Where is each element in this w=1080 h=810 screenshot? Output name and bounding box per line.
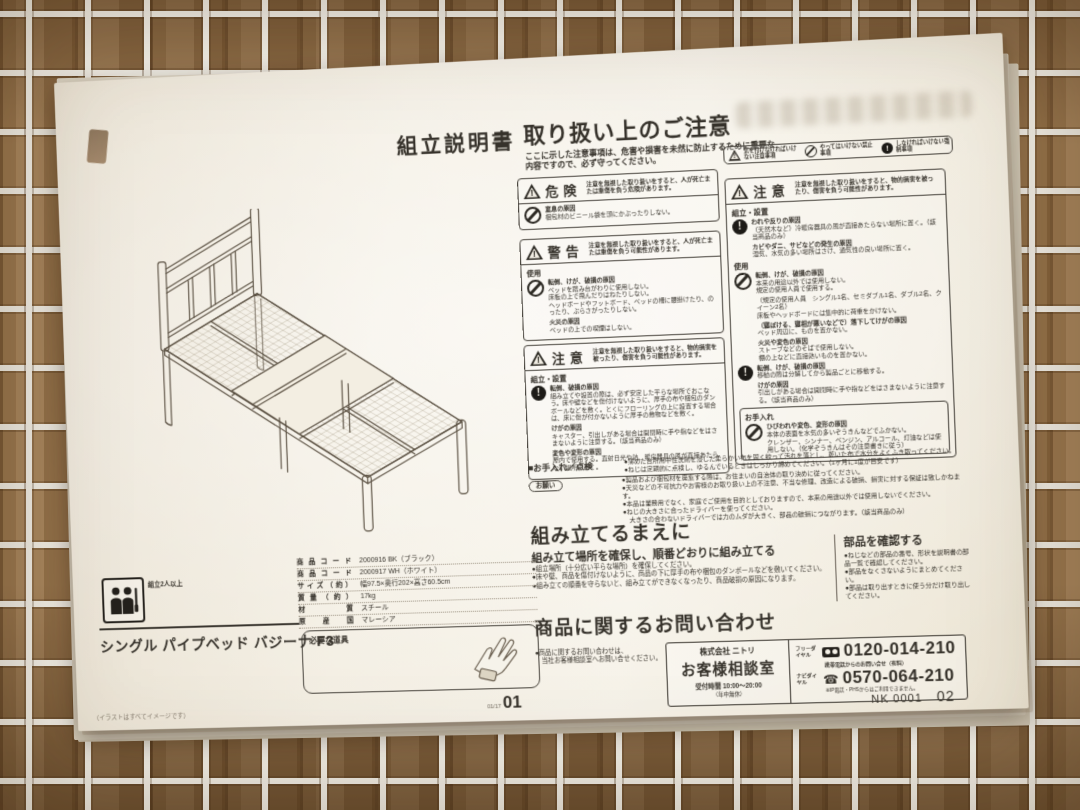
prohibition-icon — [524, 206, 542, 224]
page-big: 01 — [503, 692, 523, 711]
warning-triangle-icon: ! — [525, 244, 543, 260]
maintenance-section: ■お手入れ／点検 ●薄めた台所用中性洗剤を浸した柔らかい布を固く絞って汚れを落と… — [528, 447, 962, 528]
paper-edge-smudge — [87, 129, 109, 164]
freedial-number: 0120-014-210 — [843, 639, 956, 661]
inquiry-note: ●商品に関するお問い合わせは、 当社お客様相談室へお問い合せください。 — [535, 647, 662, 666]
ink-bleed-through — [736, 91, 973, 129]
office-name: お客様相談室 — [671, 656, 785, 680]
two-person-assembly-icon — [101, 577, 145, 623]
mandatory-icon — [531, 385, 547, 401]
check-parts-heading: 部品を確認する — [843, 530, 969, 550]
legend-mandatory-label: しなければいけない強制事項 — [896, 138, 954, 153]
doc-code: NK 0001 — [871, 693, 923, 706]
instruction-manual-page: 組立説明書 取り扱い上のご注意 ここに示した注意事項は、危害や損害を未然に防止す… — [54, 33, 1029, 731]
spec-value: 17kg — [360, 593, 375, 600]
warning-triangle-icon: ! — [530, 350, 548, 366]
document-code: NK 000102 — [871, 688, 956, 708]
freedial-logo-icon — [822, 646, 840, 657]
prohibition-icon — [805, 145, 818, 158]
check-parts-section: 部品を確認する ●ねじなどの部品の番号、形状を説明書の部品一覧で確認してください… — [834, 530, 971, 601]
page-number: 01/1701 — [487, 692, 522, 713]
navidial-number: 0570-064-210 — [842, 666, 955, 688]
spec-label: 原産国 — [299, 615, 354, 627]
freedial-label: フリーダイヤル — [795, 646, 818, 658]
illustration-note: （イラストはすべてイメージです） — [93, 711, 189, 722]
danger-label: 危険 — [545, 179, 582, 200]
caution2-item: 転倒、けが、破損の原因 移動の際は分解してから製品ごとに移動する。 けがの原因 … — [738, 357, 949, 405]
caution-desc: 注意を無視した取り扱いをすると、物的損害を被ったり、傷害を負う可能性があります。 — [593, 344, 719, 363]
spec-label: 商品コード — [297, 568, 352, 581]
legend-prohibited-label: やってはいけない禁止事項 — [820, 142, 878, 157]
spec-label: 材質 — [298, 603, 353, 615]
warning-box: ! 警告 注意を無視した取り扱いをすると、人が死亡または重傷を負う可能性がありま… — [519, 230, 724, 341]
doc-code-num: 02 — [936, 688, 955, 705]
warning-triangle-icon: ! — [728, 149, 741, 161]
prohibition-icon — [734, 272, 752, 290]
maintenance-label: ■お手入れ／点検 — [528, 459, 617, 478]
page-fraction: 01/17 — [487, 704, 501, 710]
caution2-label: 注意 — [753, 180, 790, 201]
contact-company-cell: 株式会社 ニトリ お客様相談室 受付時間 10:00～20:00 （年中無休） — [666, 640, 791, 706]
photo-of-manual: { "title": "組立説明書", "legend": { "items":… — [0, 0, 1080, 810]
product-spec-table: 商品コード2000916 BK（ブラック） 商品コード2000917 WH（ホワ… — [296, 550, 538, 629]
legend-prohibited: やってはいけない禁止事項 — [805, 142, 878, 158]
warning-item: 転倒、けが、破損の原因 ベッドを踏み台がわりに使用しない。 床板の上で飛んだりは… — [527, 272, 718, 335]
spec-label: 商品コード — [296, 556, 351, 569]
navidial-label: ナビダイヤル — [796, 674, 819, 686]
warning-label: 警告 — [547, 241, 584, 262]
prohibition-icon — [745, 424, 763, 442]
office-hours-note: （年中無休） — [672, 689, 786, 700]
mandatory-icon — [732, 219, 748, 235]
caution-box-right: ! 注意 注意を無視した取り扱いをすると、物的損害を被ったり、傷害を負う可能性が… — [724, 168, 956, 465]
spec-value: スチール — [361, 604, 389, 612]
divider-rule — [99, 623, 299, 631]
bed-line-illustration — [86, 197, 513, 546]
legend-caution-label: 気を付けなければいけない注意事項 — [743, 146, 800, 161]
warning-triangle-icon: ! — [523, 183, 541, 199]
mandatory-icon — [881, 142, 893, 154]
inquiry-heading: 商品に関するお問い合わせ — [534, 607, 777, 641]
mandatory-icon — [738, 365, 754, 381]
prohibition-icon — [527, 279, 545, 297]
caution2-desc: 注意を無視した取り扱いをすると、物的損害を被ったり、傷害を負う可能性があります。 — [795, 175, 940, 196]
product-name: シングル パイプベッド バジーナ F3 — [100, 630, 335, 657]
spec-label: 質量（約） — [298, 591, 353, 604]
phone-icon: ☎ — [823, 673, 839, 686]
manual-title: 組立説明書 — [396, 125, 516, 161]
parts-item: ●部品は取り出すときに使う分だけ取り出してください。 — [845, 581, 971, 601]
warning-triangle-icon: ! — [731, 184, 749, 200]
spec-value: 2000916 BK（ブラック） — [359, 555, 439, 564]
caution2-item: われや反りの原因 （天然木など）冷暖房器具の風が直接あたらない場所に置く。（該当… — [732, 210, 942, 260]
spec-value: 2000917 WH（ホワイト） — [360, 567, 442, 576]
caution-line: 組み立てや設置の際は、必ず安定した平らな場所でおこなう。床や壁などを傷付けないよ… — [550, 386, 721, 423]
request-label: お願い — [529, 480, 563, 492]
spec-value: マレーシア — [361, 616, 396, 624]
caution2-item: 転倒、けが、破損の原因 本来の用途以外では使用しない。 規定の使用人員で使用する… — [734, 264, 946, 363]
caution-label: 注意 — [551, 347, 588, 367]
warning-desc: 注意を無視した取り扱いをすると、人が死亡または重傷を負う可能性があります。 — [588, 237, 714, 257]
assembly-persons-note: 組立2人以上 — [148, 578, 183, 589]
danger-box: ! 危険 注意を無視した取り扱いをすると、人が死亡または重傷を負う危険があります… — [517, 169, 720, 231]
legend-mandatory: しなければいけない強制事項 — [881, 138, 954, 154]
spec-value: 幅97.5×奥行202×高さ60.5cm — [360, 579, 450, 589]
glove-icon — [466, 631, 526, 682]
required-tools-box: 必要な道具 — [301, 624, 540, 694]
before-assembly-heading: 組み立てるまえに — [530, 517, 692, 549]
legend-caution: ! 気を付けなければいけない注意事項 — [728, 146, 801, 162]
danger-item: 窒息の原因 梱包材のビニール袋を頭にかぶったりしない。 — [524, 198, 713, 224]
navidial-row: ナビダイヤル ☎ 0570-064-210 — [796, 666, 960, 689]
spec-label: サイズ（約） — [297, 580, 352, 593]
danger-desc: 注意を無視した取り扱いをすると、人が死亡または重傷を負う危険があります。 — [586, 176, 712, 196]
